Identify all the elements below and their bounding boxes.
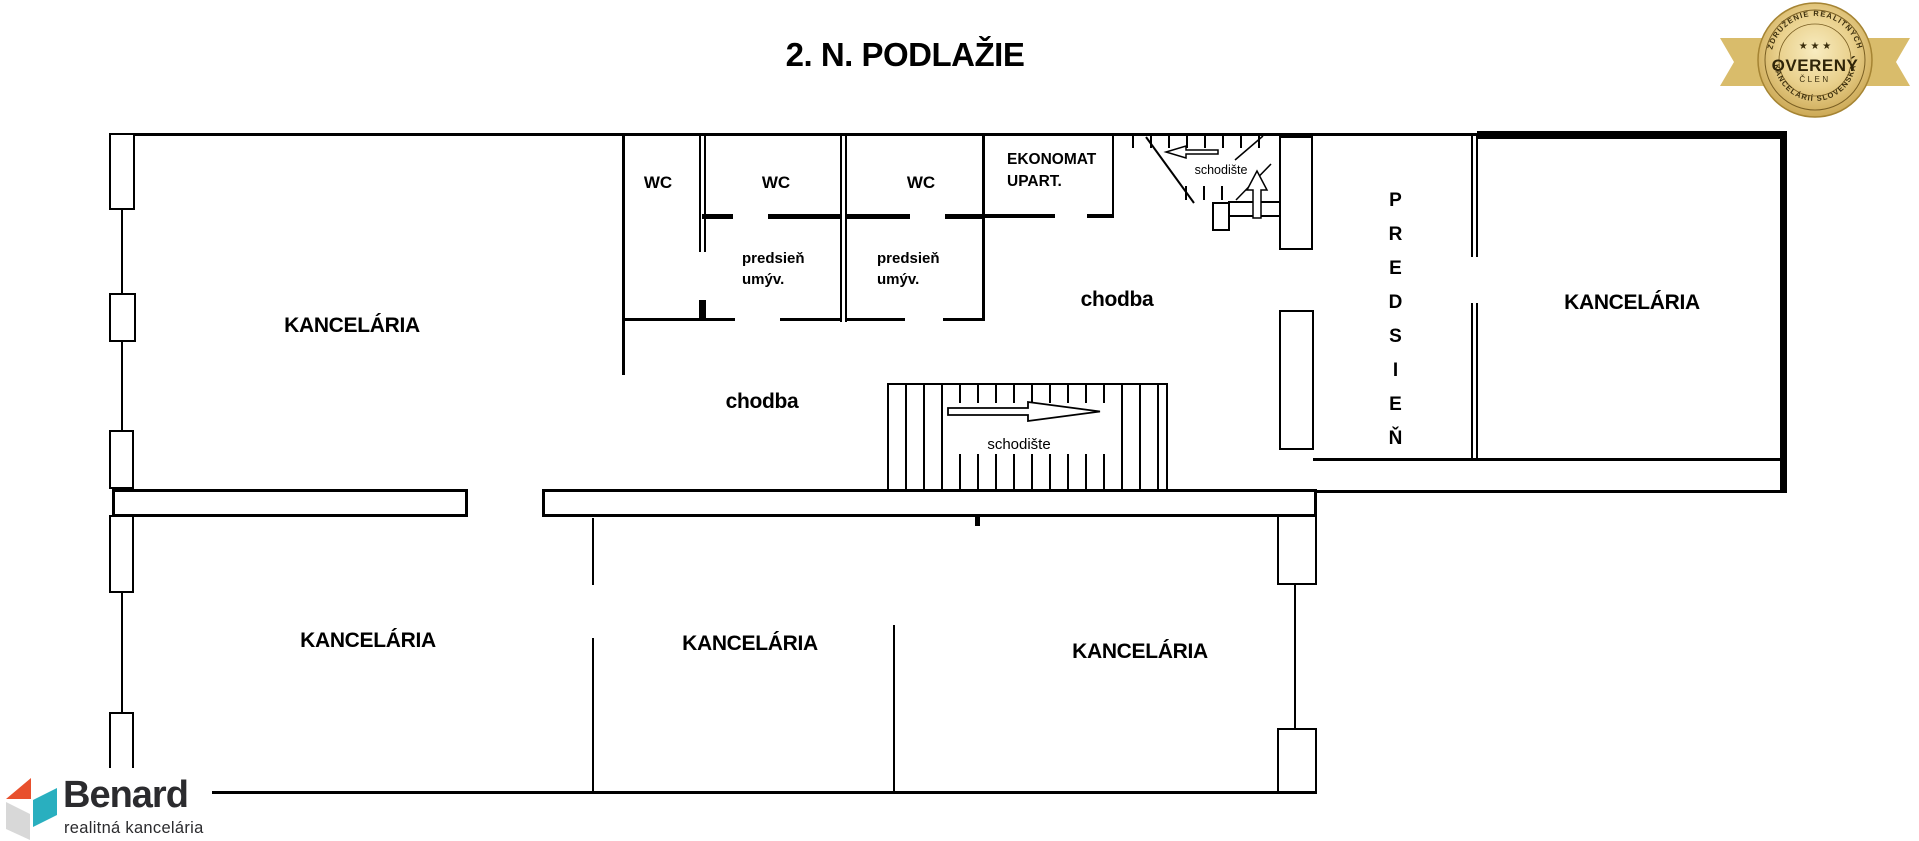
room-label-office-right: KANCELÁRIA xyxy=(1564,291,1700,315)
wall-east-segment xyxy=(1294,585,1296,728)
stair-direction-arrow-left-icon xyxy=(1166,146,1218,158)
stair-tread xyxy=(995,454,997,489)
window-pier xyxy=(109,133,135,210)
stair-tread xyxy=(1013,385,1015,403)
wall-hall-office xyxy=(1471,135,1473,257)
wall-wc3-east xyxy=(982,135,985,321)
wall-south-right-section-2 xyxy=(1317,490,1780,493)
wall-wc-south xyxy=(780,318,842,321)
vestibule-1-line1: predsieň xyxy=(742,248,805,269)
stair-tread xyxy=(1222,135,1224,148)
room-label-corridor-upper: chodba xyxy=(1081,288,1154,312)
wall-wc-south xyxy=(847,318,905,321)
stair-tread xyxy=(1132,135,1134,148)
stair-tread xyxy=(977,454,979,489)
stair-pier xyxy=(1212,202,1230,231)
stair-tread xyxy=(1240,135,1242,148)
wall-divider-bottom-right xyxy=(893,625,895,793)
room-label-wc-1: WC xyxy=(644,173,672,193)
stair-landing-line xyxy=(1228,201,1279,203)
stair-tread xyxy=(1031,385,1033,403)
room-label-wc-3: WC xyxy=(907,173,935,193)
stair-tread xyxy=(1186,135,1188,148)
wall-left-segment xyxy=(121,210,123,293)
stair-tread xyxy=(1168,135,1170,148)
wall-left-segment xyxy=(121,593,123,712)
wall-hall-office xyxy=(1476,303,1478,460)
wall-wc3-partition xyxy=(945,214,982,219)
floor-plan-page: 2. N. PODLAŽIE KANCELÁRIA KANCELÁRIA KAN… xyxy=(0,0,1919,841)
stair-tread xyxy=(1103,385,1105,403)
stair-tread xyxy=(1221,186,1223,200)
plan-annotations xyxy=(0,0,1919,841)
wall-right xyxy=(1780,131,1787,493)
cube-face-orange xyxy=(6,778,31,799)
wall-wc1-east xyxy=(704,135,706,252)
stair-direction-arrow-up-icon xyxy=(1247,171,1267,218)
wall-wc1-east xyxy=(699,135,701,252)
stair-tread xyxy=(1067,454,1069,489)
stair-tread xyxy=(1013,454,1015,489)
stair-tread xyxy=(1150,135,1152,148)
room-label-office-bottom-middle: KANCELÁRIA xyxy=(682,632,818,656)
stair-tread xyxy=(905,385,907,490)
wall-ekonomat-east xyxy=(1112,135,1114,217)
badge-sub-text: ČLEN xyxy=(1799,75,1830,84)
wall-ekonomat-south xyxy=(1087,214,1114,218)
overeny-clen-badge: ZDRUŽENIE REALITNÝCH KANCELÁRIÍ SLOVENSK… xyxy=(1713,0,1919,125)
stair-tread xyxy=(1049,385,1051,403)
stair-tread xyxy=(1085,454,1087,489)
benard-cube-icon xyxy=(0,768,62,841)
stair-tread xyxy=(941,385,943,490)
badge-stars: ★ ★ ★ xyxy=(1799,41,1831,52)
stair-tread xyxy=(959,385,961,403)
cube-face-teal xyxy=(33,788,57,827)
stair-tread xyxy=(977,385,979,403)
wall-pier xyxy=(1279,310,1314,450)
room-label-vestibule-1: predsieň umýv. xyxy=(742,248,805,290)
wall-top-thick xyxy=(1477,131,1780,139)
room-label-hall-vertical: PREDSIEŇ xyxy=(1384,190,1406,462)
cube-face-gray xyxy=(6,802,30,840)
wall-wc3-partition xyxy=(847,214,910,219)
wall-divider-bottom-left xyxy=(592,518,594,585)
stair-tread xyxy=(1203,186,1205,200)
wall-bottom xyxy=(121,791,1317,794)
stair-landing-line xyxy=(1228,215,1279,217)
room-label-wc-2: WC xyxy=(762,173,790,193)
stair-outline xyxy=(887,383,889,490)
window-pier xyxy=(1277,515,1317,585)
stair-outline xyxy=(1166,383,1168,490)
room-label-office-bottom-left: KANCELÁRIA xyxy=(300,629,436,653)
wall-office-wc xyxy=(622,135,625,375)
wall-wc2-partition xyxy=(702,214,733,219)
vestibule-2-line2: umýv. xyxy=(877,269,940,290)
wall-hall-office xyxy=(1471,303,1473,460)
window-pier xyxy=(109,293,136,342)
stair-tread xyxy=(1157,385,1159,490)
room-label-office-top-left: KANCELÁRIA xyxy=(284,314,420,338)
wall-ekonomat-south xyxy=(985,214,1055,218)
room-label-ekonomat: EKONOMAT UPART. xyxy=(1007,149,1096,193)
wall-divider-bottom-left xyxy=(592,638,594,793)
room-label-corridor-lower: chodba xyxy=(726,390,799,414)
stair-tread xyxy=(1204,135,1206,148)
wall-pier xyxy=(1279,136,1313,250)
wall-left-segment xyxy=(121,342,123,430)
vestibule-1-line2: umýv. xyxy=(742,269,805,290)
vestibule-2-line1: predsieň xyxy=(877,248,940,269)
wall-wc2-east xyxy=(840,135,842,322)
stair-tread xyxy=(1031,454,1033,489)
wall-hall-office xyxy=(1476,135,1478,257)
wall-wc2-east xyxy=(845,135,847,322)
stair-tread xyxy=(1103,454,1105,489)
logo-tagline: realitná kancelária xyxy=(64,819,204,838)
stair-tread xyxy=(1067,385,1069,403)
stair-tread xyxy=(1121,385,1123,490)
window-pier xyxy=(109,430,134,489)
corridor-wall-band xyxy=(542,489,1317,517)
stair-tread xyxy=(923,385,925,490)
stair-tread xyxy=(1085,385,1087,403)
page-title: 2. N. PODLAŽIE xyxy=(786,36,1025,74)
benard-logo: Benard realitná kancelária xyxy=(0,768,212,841)
ekonomat-line1: EKONOMAT xyxy=(1007,149,1096,171)
badge-main-text: OVERENÝ xyxy=(1772,56,1859,75)
stair-tread xyxy=(1139,385,1141,490)
wall-wc-south xyxy=(943,318,984,321)
window-pier xyxy=(1277,728,1317,793)
window-pier xyxy=(109,515,134,593)
stair-direction-arrow-right-icon xyxy=(948,402,1100,421)
wall-top xyxy=(113,133,1477,136)
ekonomat-line2: UPART. xyxy=(1007,171,1096,193)
door-jamb xyxy=(975,517,980,526)
room-label-office-bottom-right: KANCELÁRIA xyxy=(1072,640,1208,664)
wall-wc-south xyxy=(622,318,735,321)
door-jamb xyxy=(699,300,706,320)
corridor-wall-band xyxy=(112,489,468,517)
logo-name: Benard xyxy=(63,773,188,817)
label-staircase-upper: schodište xyxy=(1195,163,1248,177)
wall-wc2-partition xyxy=(768,214,842,219)
stair-tread xyxy=(995,385,997,403)
room-label-vestibule-2: predsieň umýv. xyxy=(877,248,940,290)
label-staircase-lower: schodište xyxy=(987,436,1050,453)
stair-tread xyxy=(1258,135,1260,148)
stair-tread xyxy=(959,454,961,489)
stair-tread xyxy=(1185,186,1187,200)
stair-outline xyxy=(887,383,1168,385)
stair-tread xyxy=(1049,454,1051,489)
